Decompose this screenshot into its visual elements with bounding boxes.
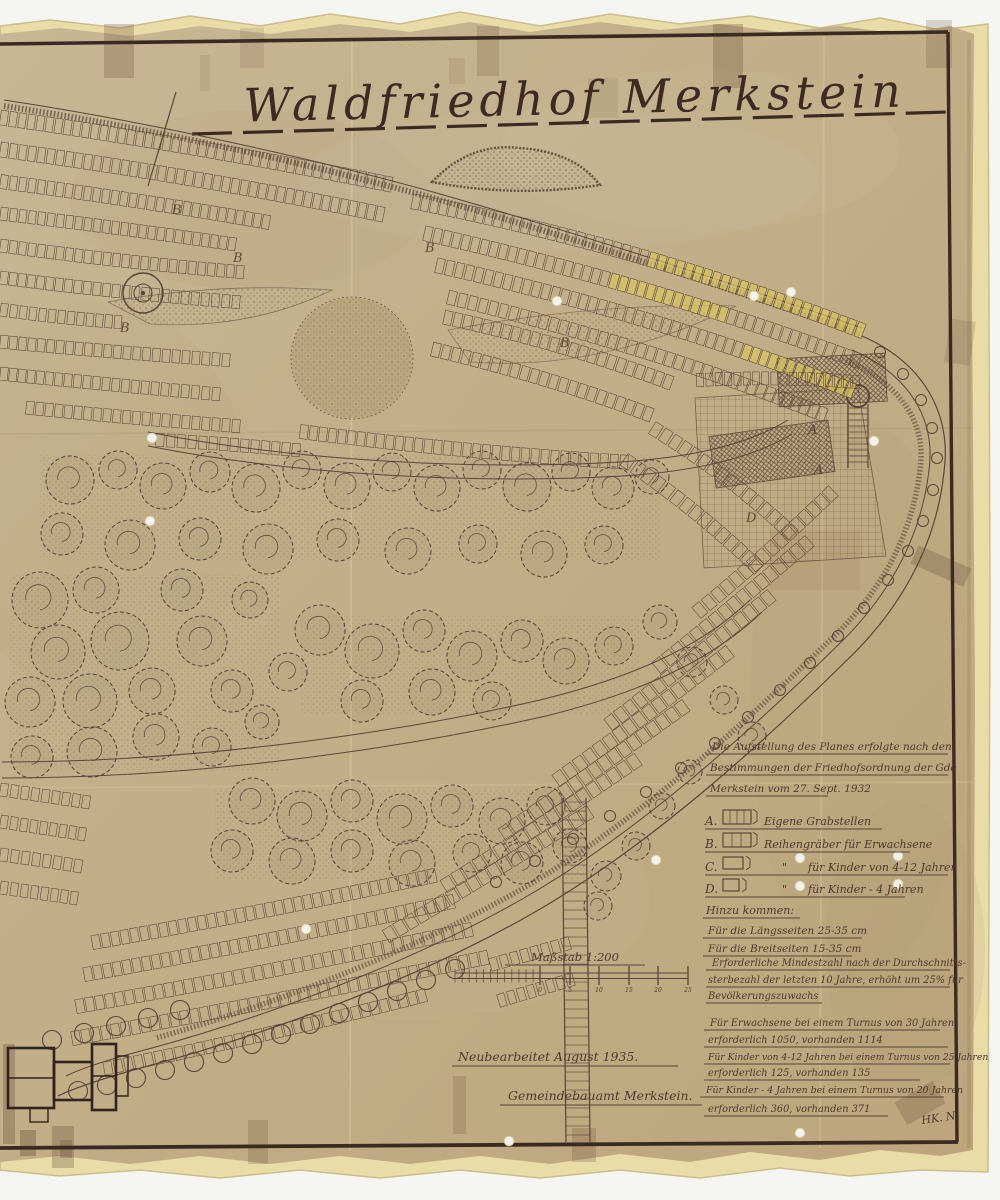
tape-stain (20, 1130, 36, 1156)
tree-symbol (140, 463, 186, 509)
plan-canvas: BBBBBAAD Waldfriedhof Merkstein Die Aufs… (0, 0, 1000, 1200)
tree-symbol (403, 610, 445, 652)
tree-symbol (552, 453, 590, 491)
paper-hole (301, 924, 311, 934)
tree-symbol (99, 451, 137, 489)
paper-hole (795, 1128, 805, 1138)
addendum-line: Für die Breitseiten 15-35 cm (707, 943, 862, 955)
office-name: Gemeindebauamt Merkstein. (508, 1088, 693, 1103)
tree-symbol (283, 451, 321, 489)
tree-symbol (179, 518, 221, 560)
legend-label: Eigene Grabstellen (763, 815, 871, 828)
tree-symbol (5, 677, 55, 727)
tree-symbol (105, 520, 155, 570)
tree-symbol (341, 680, 383, 722)
svg-text:20: 20 (653, 987, 662, 994)
tree-symbol (453, 834, 491, 872)
section-letter: B (232, 251, 243, 266)
tree-symbol (331, 780, 373, 822)
tape-stain (477, 26, 499, 76)
tape-stain (248, 1120, 268, 1164)
legend-key: A. (704, 814, 717, 828)
scale-label: Maßstab 1:200 (530, 950, 619, 964)
tree-symbol (190, 452, 230, 492)
paper-hole (651, 855, 661, 865)
legend-key: B. (704, 837, 718, 851)
tree-symbol (459, 525, 497, 563)
tree-symbol (521, 531, 567, 577)
turnus-note-line: erforderlich 1050, vorhanden 1114 (708, 1035, 883, 1046)
tree-symbol (229, 778, 275, 824)
legend-ditto: " (782, 861, 787, 874)
tree-symbol (331, 830, 373, 872)
tree-symbol (592, 467, 634, 509)
tree-symbol (389, 840, 435, 886)
tree-symbol (193, 728, 231, 766)
tree-symbol (377, 794, 427, 844)
svg-text:5: 5 (568, 987, 572, 994)
tree-symbol (649, 793, 675, 819)
paper-hole (795, 853, 805, 863)
ordinance-note-line: Die Aufstellung des Planes erfolgte nach… (711, 741, 952, 753)
turnus-note-line: erforderlich 125, vorhanden 135 (708, 1068, 870, 1079)
tree-symbol (643, 605, 677, 639)
paper-hole (749, 291, 759, 301)
tree-symbol (73, 567, 119, 613)
tree-symbol (31, 625, 85, 679)
tree-symbol (295, 605, 345, 655)
revision-note: Neubearbeitet August 1935. (457, 1049, 638, 1064)
ordinance-note-line: Merkstein vom 27. Sept. 1932 (709, 783, 871, 795)
tree-symbol (269, 838, 315, 884)
paper-hole (552, 296, 562, 306)
tree-symbol (678, 760, 702, 784)
legend-label: Reihengräber für Erwachsene (763, 838, 933, 851)
circular-plaza-stipple (292, 298, 412, 418)
ordinance-note-line: Bestimmungen der Friedhofsordnung der Gd… (709, 762, 957, 774)
addendum-line: Für die Längsseiten 25-35 cm (707, 925, 867, 937)
tree-symbol (161, 569, 203, 611)
tree-symbol (41, 513, 83, 555)
tree-symbol (501, 620, 543, 662)
tree-symbol (46, 456, 94, 504)
section-letter: B (119, 321, 130, 336)
tree-symbol (710, 686, 738, 714)
legend-label: für Kinder - 4 Jahren (807, 883, 924, 896)
tree-symbol (91, 612, 149, 670)
tree-symbol (232, 582, 268, 618)
tree-symbol (385, 528, 431, 574)
tree-symbol (67, 727, 117, 777)
tree-symbol (584, 892, 612, 920)
tree-symbol (503, 463, 551, 511)
tree-symbol (431, 785, 473, 827)
tree-symbol (177, 616, 227, 666)
svg-text:10: 10 (595, 987, 603, 994)
tree-symbol (543, 638, 589, 684)
tape-stain (104, 24, 134, 78)
section-letter: B (424, 241, 435, 256)
tree-symbol (269, 653, 307, 691)
tree-symbol (63, 674, 117, 728)
paper-hole (795, 881, 805, 891)
paper-hole (145, 516, 155, 526)
tree-symbol (324, 463, 370, 509)
tree-symbol (463, 451, 501, 489)
turnus-note-line: Für Kinder von 4-12 Jahren bei einem Tur… (707, 1052, 988, 1063)
capacity-note-line: Erforderliche Mindestzahl nach der Durch… (711, 958, 966, 969)
turnus-note-line: Für Kinder - 4 Jahren bei einem Turnus v… (705, 1085, 963, 1096)
paper-hole (893, 851, 903, 861)
capacity-note-line: Bevölkerungszuwachs (707, 991, 818, 1002)
legend-key: C. (705, 860, 718, 874)
tape-stain (453, 1076, 466, 1134)
tree-symbol (409, 669, 455, 715)
tree-symbol (317, 519, 359, 561)
tree-symbol (12, 572, 68, 628)
paper-hole (504, 1136, 514, 1146)
legend-ditto: " (782, 883, 787, 896)
svg-text:0: 0 (538, 987, 542, 994)
section-letter: A (807, 423, 817, 438)
tree-symbol (622, 832, 650, 860)
tree-symbol (414, 465, 460, 511)
paper-hole (147, 433, 157, 443)
tree-symbol (373, 453, 411, 491)
section-letter: D (745, 511, 757, 526)
tree-symbol (277, 791, 327, 841)
turnus-note-line: erforderlich 360, vorhanden 371 (708, 1104, 870, 1115)
turnus-note-line: Für Erwachsene bei einem Turnus von 30 J… (709, 1018, 954, 1029)
tree-symbol (473, 682, 511, 720)
tree-symbol (595, 627, 633, 665)
capacity-note-line: sterbezahl der letzten 10 Jahre, erhöht … (708, 975, 964, 986)
svg-text:15: 15 (625, 987, 633, 994)
tree-symbol (591, 861, 621, 891)
tree-symbol (345, 624, 399, 678)
tape-stain (240, 28, 264, 68)
addendum-heading: Hinzu kommen: (705, 904, 794, 917)
tree-symbol (447, 631, 497, 681)
legend-label: für Kinder von 4-12 Jahren (807, 861, 958, 874)
tree-symbol (527, 787, 565, 825)
paper-hole (786, 287, 796, 297)
tree-symbol (232, 464, 280, 512)
tape-stain (200, 55, 210, 91)
legend-key: D. (704, 882, 718, 896)
svg-text:25: 25 (683, 987, 692, 994)
tree-symbol (245, 705, 279, 739)
tree-symbol (501, 842, 543, 884)
paper-hole (869, 436, 879, 446)
tree-symbol (133, 714, 179, 760)
tree-symbol (129, 668, 175, 714)
tree-symbol (635, 460, 669, 494)
tree-symbol (211, 670, 253, 712)
tree-symbol (11, 736, 53, 778)
tree-symbol (585, 526, 623, 564)
section-letter: A (813, 463, 823, 478)
section-letter: B (559, 336, 570, 351)
section-letter: B (171, 203, 182, 218)
tree-symbol (677, 647, 707, 677)
scanned-cemetery-plan: BBBBBAAD Waldfriedhof Merkstein Die Aufs… (0, 0, 1000, 1200)
tree-symbol (243, 524, 293, 574)
tree-symbol (479, 798, 525, 844)
tree-symbol (211, 830, 253, 872)
